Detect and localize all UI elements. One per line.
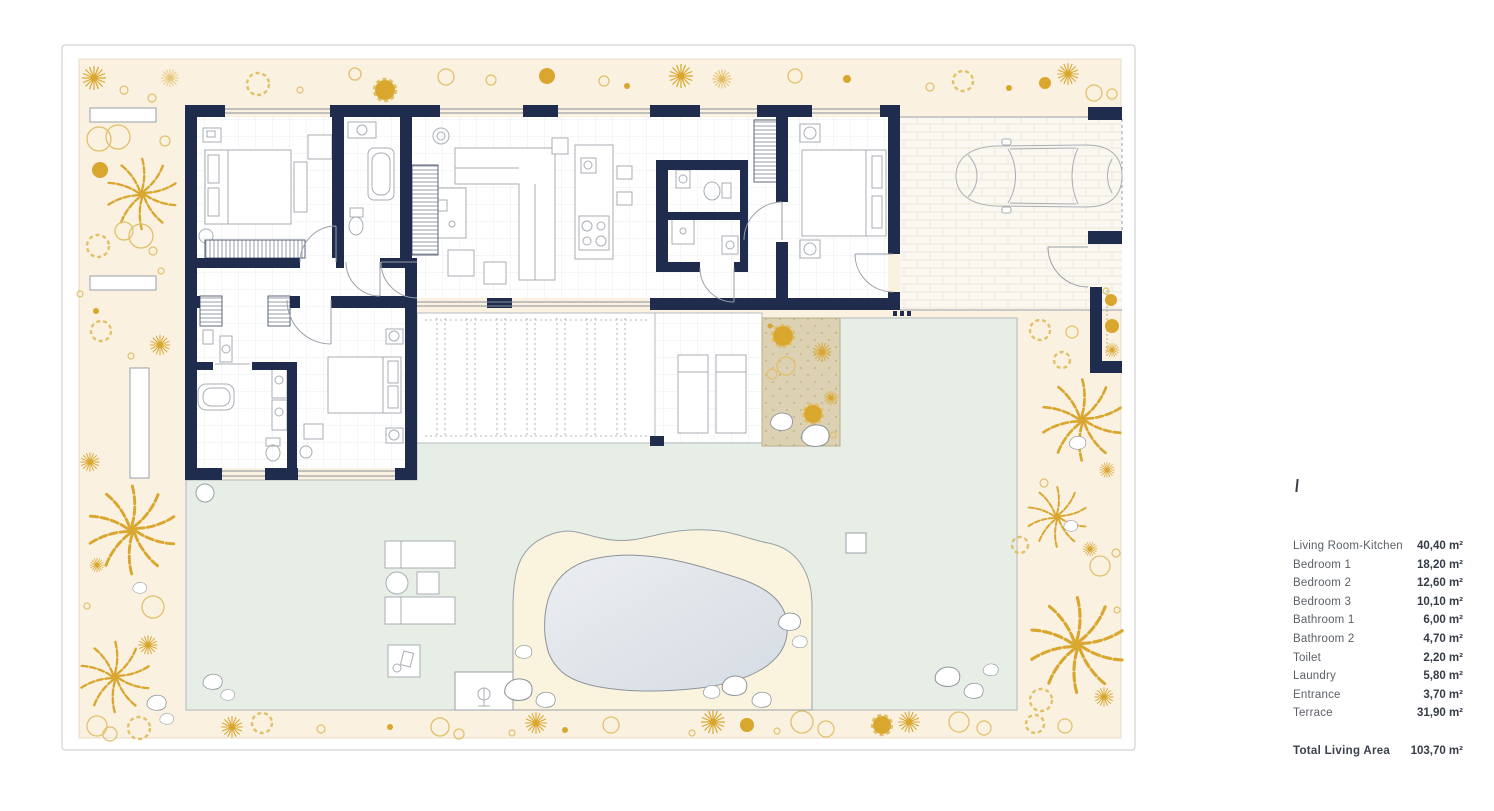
legend-total-value: 103,70 m² [1411,742,1463,761]
legend-value: 10,10 m² [1417,593,1463,612]
legend-value: 2,20 m² [1423,649,1463,668]
legend-label: Living Room-Kitchen [1293,537,1403,556]
legend-value: 6,00 m² [1423,611,1463,630]
floor-plan-page: Living Room-Kitchen 40,40 m² Bedroom 1 1… [0,0,1494,811]
legend-value: 4,70 m² [1423,630,1463,649]
legend-row: Living Room-Kitchen 40,40 m² [1293,537,1463,556]
legend-label: Bathroom 1 [1293,611,1354,630]
legend-label: Entrance [1293,686,1341,705]
legend-row: Bedroom 2 12,60 m² [1293,574,1463,593]
area-legend: Living Room-Kitchen 40,40 m² Bedroom 1 1… [1293,537,1463,761]
legend-row: Bedroom 3 10,10 m² [1293,593,1463,612]
legend-total-label: Total Living Area [1293,742,1390,761]
legend-label: Bedroom 1 [1293,556,1351,575]
wardrobe [205,240,305,258]
legend-row: Bedroom 1 18,20 m² [1293,556,1463,575]
legend-label: Bathroom 2 [1293,630,1354,649]
legend-label: Bedroom 3 [1293,593,1351,612]
legend-value: 31,90 m² [1417,704,1463,723]
terrace [417,313,840,447]
legend-value: 18,20 m² [1417,556,1463,575]
legend-value: 3,70 m² [1423,686,1463,705]
legend-row: Bathroom 1 6,00 m² [1293,611,1463,630]
legend-total-row: Total Living Area 103,70 m² [1293,742,1463,761]
legend-row: Toilet 2,20 m² [1293,649,1463,668]
legend-label: Laundry [1293,667,1336,686]
legend-label: Toilet [1293,649,1321,668]
pantry-wardrobe [412,165,438,255]
hall-wardrobe [754,120,778,182]
legend-value: 12,60 m² [1417,574,1463,593]
site-plan-drawing [0,0,1494,811]
legend-label: Bedroom 2 [1293,574,1351,593]
legend-value: 40,40 m² [1417,537,1463,556]
legend-row: Terrace 31,90 m² [1293,704,1463,723]
terrace-planting-bed [762,318,840,447]
pool [505,530,812,710]
legend-row: Laundry 5,80 m² [1293,667,1463,686]
legend-row: Bathroom 2 4,70 m² [1293,630,1463,649]
legend-label: Terrace [1293,704,1333,723]
legend-value: 5,80 m² [1423,667,1463,686]
legend-row: Entrance 3,70 m² [1293,686,1463,705]
